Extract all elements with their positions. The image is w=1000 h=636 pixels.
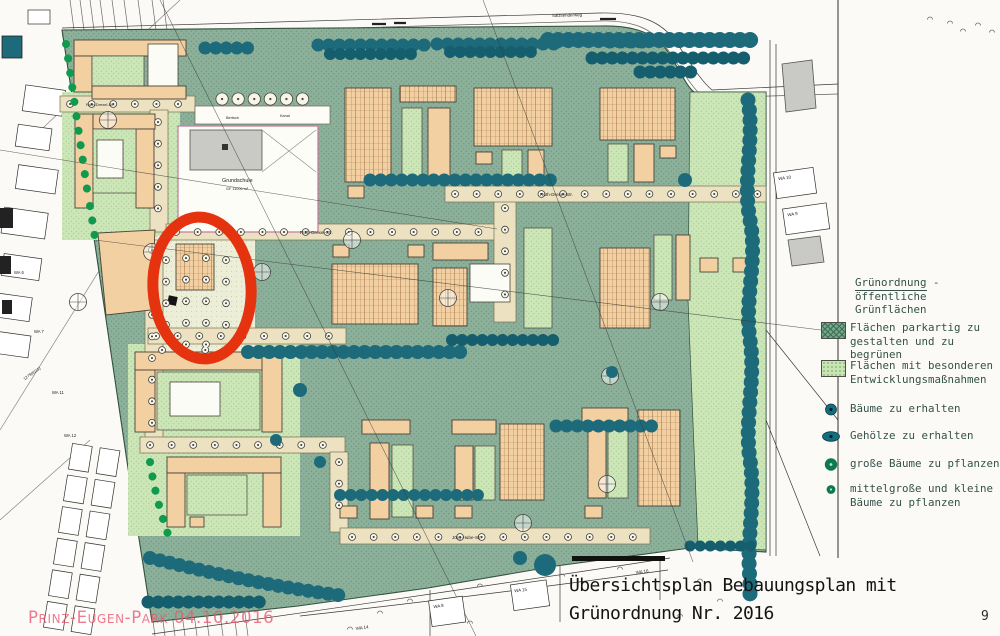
legend-item-development-areas: Flächen mit besonderenEntwicklungsmaßnah… xyxy=(816,359,993,386)
parcel-label-wa11: WA 11 xyxy=(52,390,65,395)
page-number: 9 xyxy=(981,609,989,624)
parcel-label-wa12: WA 12 xyxy=(64,433,77,438)
street-label-ruth-drexel-c: Ruth-Drexel-Str. xyxy=(300,230,333,235)
parcel-label-wa7: WA 7 xyxy=(34,329,45,334)
small-tree-plant-dot-icon xyxy=(816,482,846,497)
street-label-salzsenderweg: Salzsenderweg xyxy=(552,12,583,18)
light-green-area-swatch-icon xyxy=(821,360,846,377)
label-bertsch: Bertsch xyxy=(226,116,239,120)
scale-bar xyxy=(572,556,665,561)
label-kanal: Kanal xyxy=(280,114,290,118)
watermark-text: Prinz-Eugen-Park 04.10.2016 xyxy=(28,608,274,627)
plan-title-line1: Übersichtsplan Bebauungsplan mit xyxy=(569,575,897,596)
legend-heading-word: Grünordnung xyxy=(855,276,927,291)
legend-item-trees-preserve: Bäume zu erhalten xyxy=(816,402,961,416)
legend-item-large-trees-plant: große Bäume zu pflanzen xyxy=(816,457,1000,471)
dark-green-area-swatch-icon xyxy=(821,322,846,339)
parcel-label-wa6: WA 6 xyxy=(14,270,25,275)
scanned-plan-page: WA 6 WA 7 1279(8111) WA 11 WA 12 Salzsen… xyxy=(0,0,1000,636)
street-label-joerg-hube: Jörg-Hube-Str. xyxy=(452,535,482,540)
legend-item-shrubs-preserve: Gehölze zu erhalten xyxy=(816,429,974,443)
legend-item-small-trees-plant: mittelgroße und kleineBäume zu pflanzen xyxy=(816,482,993,509)
plan-title-line2: Grünordnung Nr. 2016 xyxy=(569,603,774,624)
tree-preserve-dot-icon xyxy=(816,402,846,417)
street-label-ruth-drexel-w: Ruth-Drexel-Str. xyxy=(86,102,115,107)
legend-item-park-areas: Flächen parkartig zugestalten und zu beg… xyxy=(816,321,1000,362)
label-grundschule: Grundschule xyxy=(222,178,253,184)
map-image: WA 6 WA 7 1279(8111) WA 11 WA 12 Salzsen… xyxy=(0,0,1000,636)
large-tree-plant-dot-icon xyxy=(816,457,846,472)
legend-heading: Grünordnung - öffentliche Grünflächen xyxy=(855,276,1000,317)
corner-building xyxy=(2,36,22,58)
shrub-preserve-dot-icon xyxy=(816,429,846,444)
legend: Grünordnung - öffentliche Grünflächen Fl… xyxy=(816,276,1000,317)
